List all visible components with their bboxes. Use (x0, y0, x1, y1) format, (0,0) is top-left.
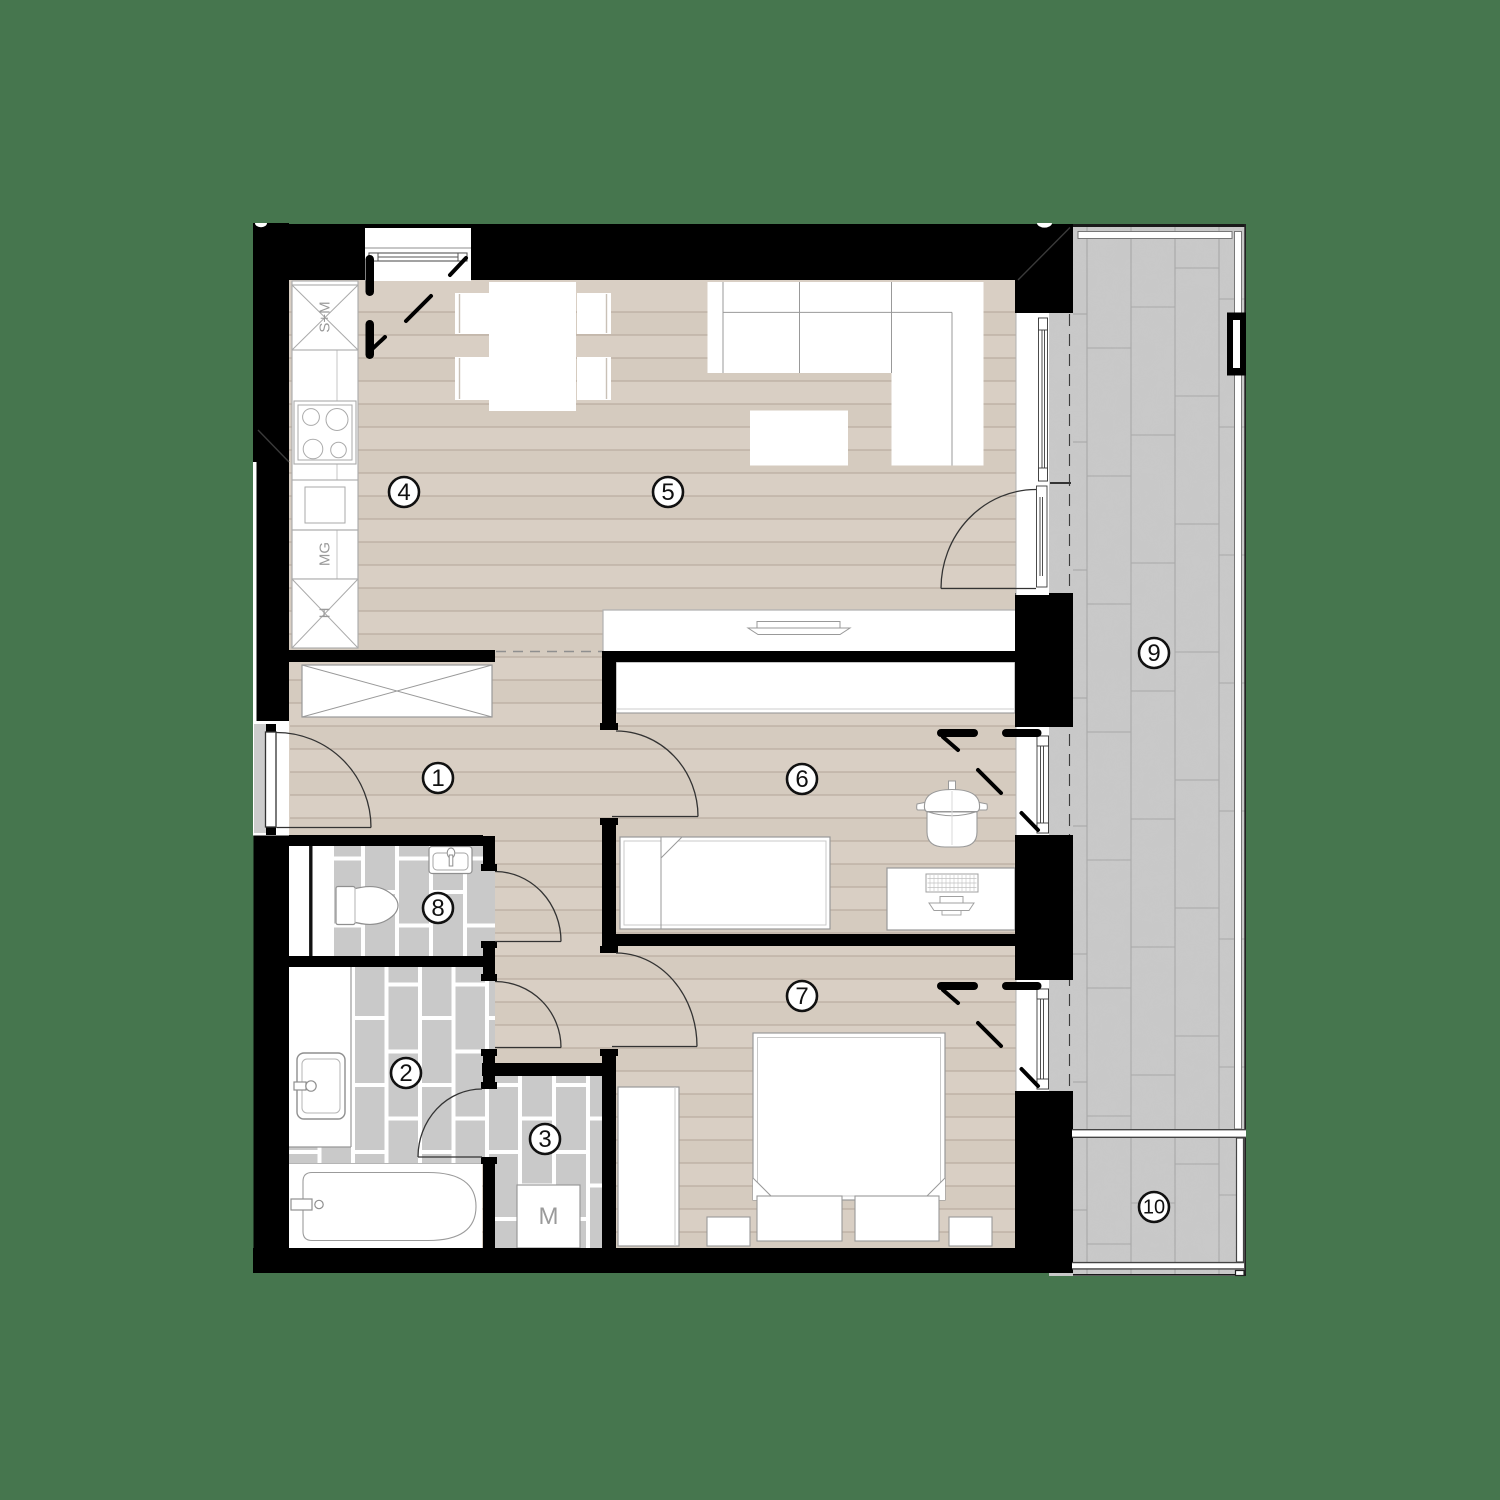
svg-text:5: 5 (661, 479, 674, 506)
svg-text:1: 1 (431, 765, 444, 792)
svg-text:MG: MG (317, 542, 334, 566)
svg-text:2: 2 (399, 1060, 412, 1087)
svg-text:10: 10 (1143, 1197, 1165, 1219)
svg-text:4: 4 (397, 479, 410, 506)
svg-text:M: M (539, 1203, 559, 1230)
svg-text:7: 7 (795, 983, 808, 1010)
svg-text:H: H (317, 608, 334, 619)
svg-text:6: 6 (795, 766, 808, 793)
svg-text:3: 3 (538, 1126, 551, 1153)
svg-text:S+M: S+M (317, 301, 334, 332)
svg-text:9: 9 (1147, 640, 1160, 667)
svg-text:8: 8 (431, 895, 444, 922)
